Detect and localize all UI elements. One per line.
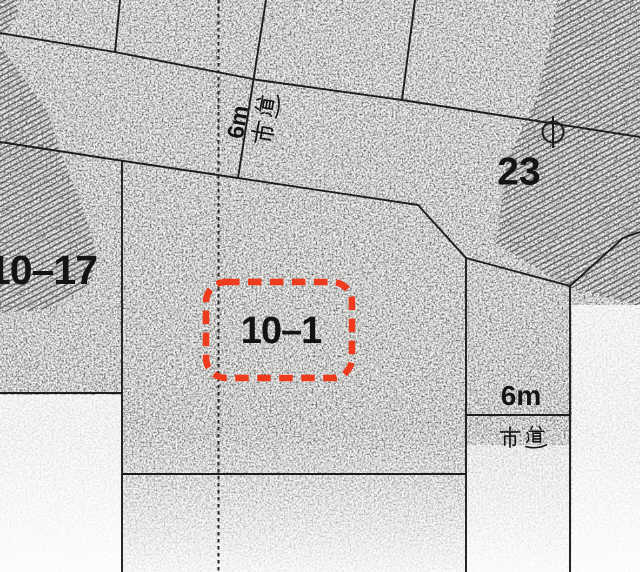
kanji-michi-glyph: [525, 426, 548, 449]
kanji-michi-glyph: [253, 91, 282, 120]
parcel-label-10-17: 10–17: [0, 250, 97, 291]
right-road-width-label: 6m: [501, 382, 541, 410]
parcel-label-23: 23: [497, 153, 540, 192]
kanji-shi-glyph: [248, 118, 277, 147]
upper-road-width-label: 6m: [224, 104, 252, 141]
parcel-label-10-1: 10–1: [241, 312, 322, 350]
cadastral-map: 10–1 10–17 23 6m 市道 6m 市道: [0, 0, 640, 572]
white-fade-bottom: [0, 430, 640, 572]
right-road-name-label: 市道: [499, 426, 548, 449]
kanji-shi-glyph: [499, 426, 522, 449]
